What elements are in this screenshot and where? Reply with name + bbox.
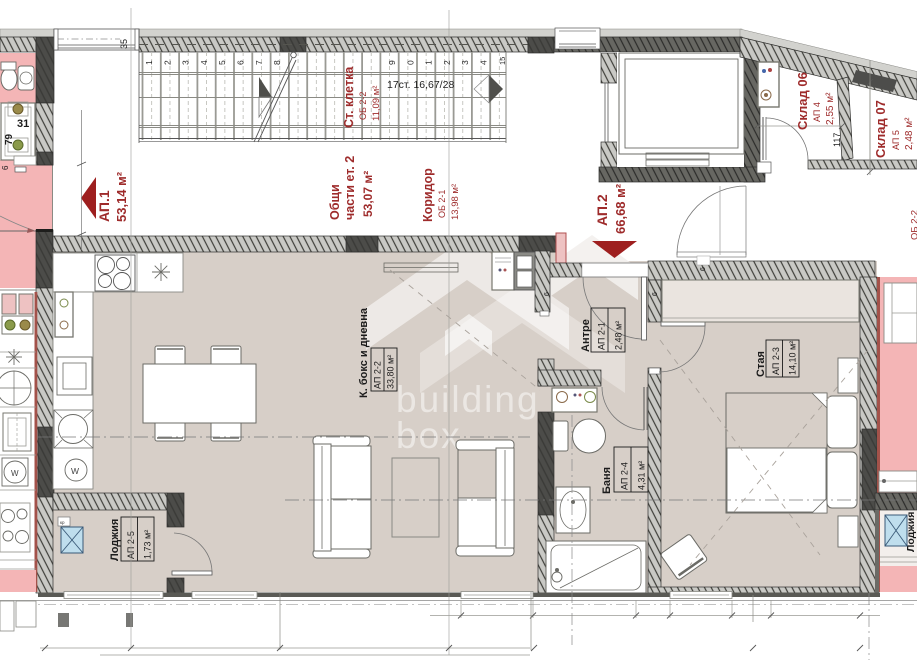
svg-text:2,48 м²: 2,48 м²: [904, 117, 915, 150]
svg-text:АП 4: АП 4: [812, 102, 822, 122]
svg-text:Лоджия: Лоджия: [109, 519, 121, 561]
svg-text:4: 4: [479, 60, 489, 65]
svg-text:3: 3: [181, 60, 191, 65]
svg-text:1: 1: [144, 60, 154, 65]
svg-text:14,10 м²: 14,10 м²: [788, 341, 798, 375]
svg-text:Общи: Общи: [328, 184, 342, 220]
svg-text:ОБ 2-2: ОБ 2-2: [910, 210, 917, 240]
svg-text:building: building: [396, 379, 540, 420]
svg-text:0: 0: [405, 60, 415, 65]
svg-text:ОБ 2-1: ОБ 2-1: [437, 190, 447, 218]
svg-text:АП 2-3: АП 2-3: [771, 347, 781, 375]
svg-text:АП.1: АП.1: [96, 190, 112, 222]
svg-text:6: 6: [544, 292, 551, 296]
svg-text:6: 6: [236, 60, 246, 65]
svg-text:Ст. клетка: Ст. клетка: [342, 66, 356, 128]
svg-text:АП.2: АП.2: [594, 194, 610, 226]
svg-text:4: 4: [199, 60, 209, 65]
svg-text:ОБ 2-2: ОБ 2-2: [358, 92, 368, 120]
svg-text:2: 2: [162, 60, 172, 65]
svg-text:2,55 м²: 2,55 м²: [825, 92, 836, 125]
svg-text:части ет. 2: части ет. 2: [343, 156, 357, 220]
svg-text:17ст. 16,67/28: 17ст. 16,67/28: [387, 79, 454, 91]
svg-text:Склад 07: Склад 07: [873, 100, 888, 158]
svg-text:7: 7: [254, 60, 264, 65]
svg-text:3: 3: [460, 60, 470, 65]
svg-text:1: 1: [424, 60, 434, 65]
svg-text:АП 2-1: АП 2-1: [597, 322, 607, 350]
svg-text:1,73 м²: 1,73 м²: [143, 530, 153, 559]
svg-text:W: W: [71, 466, 79, 476]
svg-text:53,07 м²: 53,07 м²: [361, 171, 375, 217]
svg-text:4,31 м²: 4,31 м²: [637, 461, 647, 490]
svg-text:АП 2-4: АП 2-4: [620, 462, 630, 490]
svg-text:Стая: Стая: [755, 351, 767, 377]
svg-text:кр: кр: [60, 520, 65, 525]
svg-text:2: 2: [442, 60, 452, 65]
svg-text:79: 79: [4, 133, 15, 145]
svg-text:АП 2-2: АП 2-2: [373, 361, 383, 389]
svg-text:33,80 м²: 33,80 м²: [386, 355, 396, 389]
svg-text:13,98 м²: 13,98 м²: [450, 184, 461, 220]
svg-text:Коридор: Коридор: [421, 168, 435, 222]
svg-text:6: 6: [652, 292, 659, 296]
svg-text:6: 6: [700, 267, 707, 271]
svg-text:W: W: [11, 469, 19, 478]
svg-text:117: 117: [832, 133, 842, 147]
svg-text:Баня: Баня: [601, 467, 613, 494]
svg-text:5: 5: [217, 60, 227, 65]
svg-text:53,14 м²: 53,14 м²: [114, 171, 129, 222]
svg-text:Склад 06: Склад 06: [795, 72, 810, 130]
svg-text:Антре: Антре: [580, 319, 592, 352]
svg-text:6: 6: [1, 165, 10, 170]
svg-text:2,48 м²: 2,48 м²: [614, 321, 624, 350]
svg-text:К. бокс и дневна: К. бокс и дневна: [358, 307, 370, 398]
svg-text:box: box: [396, 415, 462, 456]
svg-text:8: 8: [272, 60, 282, 65]
svg-text:9: 9: [387, 60, 397, 65]
svg-text:66,68 м²: 66,68 м²: [613, 183, 628, 234]
svg-text:АП 5: АП 5: [891, 130, 901, 150]
svg-text:31: 31: [17, 118, 29, 130]
svg-text:11,09 м²: 11,09 м²: [371, 86, 382, 121]
svg-text:35: 35: [119, 39, 129, 49]
